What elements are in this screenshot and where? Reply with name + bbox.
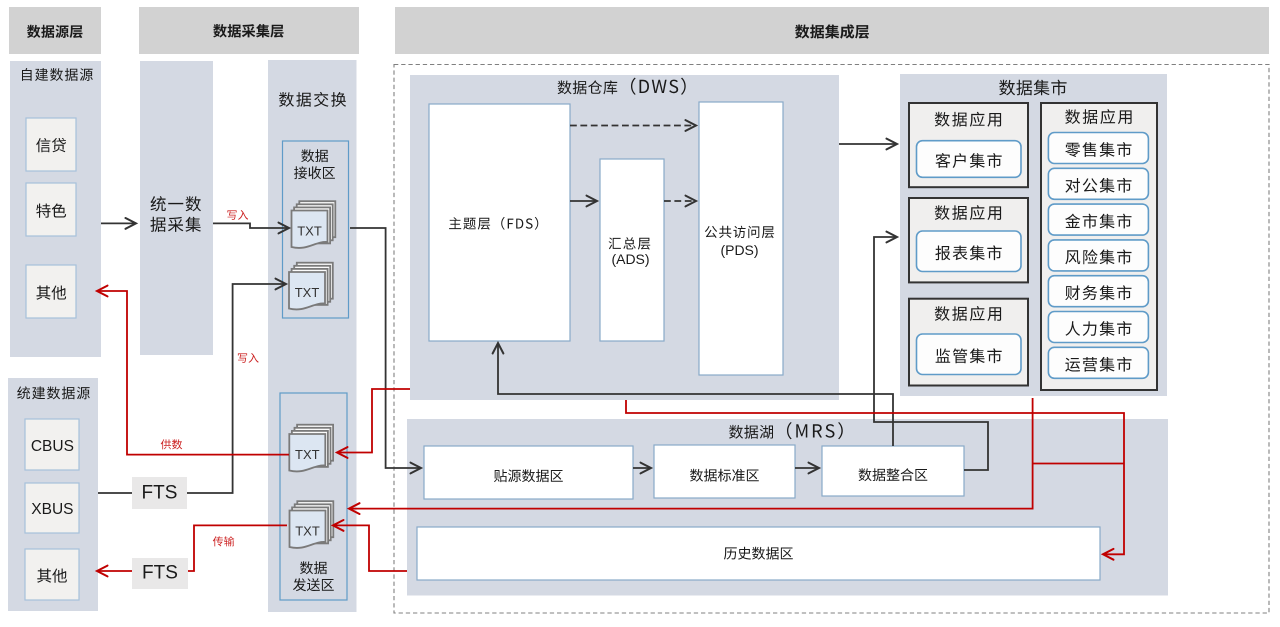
svg-text:(ADS): (ADS) bbox=[611, 251, 649, 267]
svg-text:(PDS): (PDS) bbox=[720, 242, 758, 258]
svg-text:TXT: TXT bbox=[295, 285, 320, 300]
svg-text:FTS: FTS bbox=[142, 563, 178, 584]
svg-text:TXT: TXT bbox=[295, 447, 320, 462]
svg-text:TXT: TXT bbox=[295, 524, 320, 539]
svg-text:XBUS: XBUS bbox=[31, 501, 73, 518]
svg-text:TXT: TXT bbox=[297, 224, 322, 239]
svg-text:FTS: FTS bbox=[142, 482, 178, 503]
svg-text:CBUS: CBUS bbox=[31, 438, 74, 455]
